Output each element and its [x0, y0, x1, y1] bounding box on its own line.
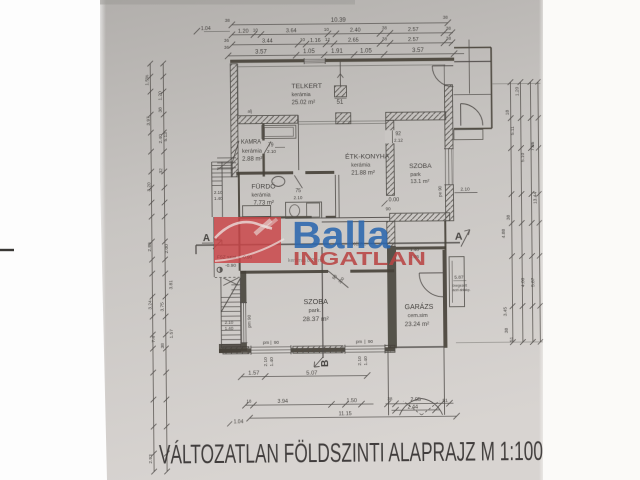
svg-text:36: 36	[224, 45, 230, 50]
svg-text:5.07: 5.07	[306, 371, 317, 377]
svg-text:2.12: 2.12	[394, 138, 403, 143]
svg-text:38: 38	[382, 25, 388, 30]
svg-text:38: 38	[387, 396, 392, 401]
svg-text:2.10: 2.10	[293, 195, 302, 200]
svg-text:2.89: 2.89	[147, 242, 153, 252]
svg-text:VÁLTOZATLAN FÖLDSZINTI ALAPRAJ: VÁLTOZATLAN FÖLDSZINTI ALAPRAJZ M 1:100	[159, 436, 543, 470]
svg-text:1.57: 1.57	[169, 329, 175, 339]
svg-text:7.4: 7.4	[151, 336, 157, 343]
svg-text:5.11: 5.11	[510, 126, 516, 135]
svg-text:18: 18	[246, 399, 251, 404]
svg-text:2.93: 2.93	[148, 454, 154, 464]
svg-text:KAMRA: KAMRA	[241, 139, 262, 146]
svg-text:3.75: 3.75	[159, 302, 165, 312]
svg-text:13.44: 13.44	[532, 192, 538, 204]
svg-text:SZOBA: SZOBA	[303, 297, 328, 306]
svg-text:38: 38	[504, 328, 510, 334]
svg-text:5.13: 5.13	[163, 132, 169, 142]
svg-text:1.5%: 1.5%	[144, 74, 150, 86]
svg-text:25.02 m²: 25.02 m²	[292, 100, 316, 106]
svg-text:11.15: 11.15	[339, 411, 352, 417]
svg-text:32: 32	[158, 168, 164, 174]
svg-text:3.64: 3.64	[286, 28, 297, 34]
svg-text:A: A	[455, 231, 463, 243]
svg-text:38: 38	[443, 15, 449, 20]
svg-text:1.04: 1.04	[234, 419, 244, 425]
svg-text:-0.90: -0.90	[225, 263, 236, 269]
svg-text:13.1 m²: 13.1 m²	[410, 179, 429, 185]
svg-text:1.57: 1.57	[248, 371, 259, 377]
svg-text:2.57: 2.57	[408, 37, 419, 43]
svg-text:38: 38	[382, 36, 388, 41]
svg-text:10: 10	[300, 37, 306, 42]
svg-text:2.88 m²: 2.88 m²	[242, 157, 262, 163]
svg-text:3.57: 3.57	[412, 48, 424, 54]
svg-text:kerámia: kerámia	[291, 92, 310, 98]
svg-text:79: 79	[268, 142, 274, 148]
svg-text:10.39: 10.39	[331, 18, 347, 24]
svg-text:kerámia: kerámia	[251, 192, 270, 198]
svg-text:ÉTK-KONYHA: ÉTK-KONYHA	[345, 151, 390, 160]
svg-text:38: 38	[506, 214, 512, 220]
svg-text:2.95: 2.95	[410, 397, 421, 403]
svg-text:1.40: 1.40	[269, 357, 275, 367]
svg-text:92: 92	[395, 131, 401, 137]
svg-text:75: 75	[295, 188, 301, 194]
svg-text:0.00: 0.00	[388, 197, 399, 203]
svg-text:pm: pm	[356, 339, 363, 344]
svg-text:1.50: 1.50	[346, 398, 357, 404]
svg-text:36: 36	[224, 38, 230, 43]
svg-text:38: 38	[160, 343, 166, 349]
svg-text:1.91: 1.91	[331, 49, 343, 55]
svg-text:2.10: 2.10	[214, 190, 223, 195]
svg-text:3.44: 3.44	[262, 38, 273, 44]
svg-text:2.10: 2.10	[267, 149, 276, 154]
svg-text:1.40: 1.40	[225, 326, 234, 331]
svg-text:2.10: 2.10	[225, 320, 234, 325]
svg-text:1.16: 1.16	[310, 38, 321, 44]
svg-text:2.44: 2.44	[407, 405, 418, 411]
svg-text:üvegezett: üvegezett	[452, 284, 467, 288]
svg-text:1.40: 1.40	[363, 356, 369, 366]
svg-text:cem.sim: cem.sim	[408, 313, 429, 319]
svg-text:5.10: 5.10	[520, 152, 526, 162]
svg-text:B: B	[320, 360, 331, 367]
svg-text:park: park	[410, 172, 421, 178]
svg-text:3.24: 3.24	[147, 300, 153, 310]
svg-text:90: 90	[386, 206, 392, 211]
svg-text:90: 90	[368, 339, 374, 344]
svg-text:21.88 m²: 21.88 m²	[351, 170, 375, 176]
svg-text:3.97: 3.97	[146, 116, 152, 126]
svg-text:INGATLAN: INGATLAN	[293, 249, 426, 269]
svg-text:12: 12	[325, 37, 331, 42]
svg-text:10: 10	[253, 28, 259, 33]
svg-text:2.10: 2.10	[263, 357, 269, 367]
svg-text:1.04: 1.04	[201, 26, 211, 32]
svg-text:4.00: 4.00	[520, 277, 526, 287]
svg-text:2.57: 2.57	[408, 27, 419, 33]
svg-text:90: 90	[274, 340, 280, 345]
svg-text:4.88: 4.88	[501, 229, 507, 239]
svg-text:51: 51	[337, 100, 344, 106]
svg-text:A: A	[203, 233, 210, 244]
svg-text:3.94: 3.94	[277, 399, 288, 405]
svg-text:kerámia: kerámia	[242, 149, 263, 155]
svg-text:23.24 m²: 23.24 m²	[405, 321, 429, 328]
svg-text:2.40: 2.40	[350, 28, 361, 34]
svg-text:1.05: 1.05	[360, 48, 372, 54]
svg-text:acél ablakp.: acél ablakp.	[452, 288, 470, 292]
svg-text:28.37 m²: 28.37 m²	[303, 316, 330, 323]
svg-text:51: 51	[509, 336, 515, 342]
svg-text:3.81: 3.81	[168, 280, 174, 290]
svg-text:1.20: 1.20	[157, 91, 163, 101]
svg-text:51: 51	[442, 398, 448, 404]
svg-text:FSZ szint = -0.90: FSZ szint = -0.90	[217, 255, 253, 260]
svg-text:park.: park.	[309, 308, 322, 314]
svg-text:2.10: 2.10	[460, 187, 470, 193]
svg-text:SZOBA: SZOBA	[409, 163, 432, 170]
svg-text:GARÁZS: GARÁZS	[405, 302, 434, 311]
svg-text:18: 18	[505, 109, 511, 115]
svg-text:alj: alj	[248, 109, 252, 114]
svg-text:38: 38	[446, 36, 452, 41]
svg-text:7.86: 7.86	[530, 141, 536, 151]
svg-text:3.20: 3.20	[146, 182, 152, 192]
svg-text:3.57: 3.57	[255, 49, 267, 55]
svg-text:1.40: 1.40	[214, 196, 223, 201]
svg-text:1.20: 1.20	[238, 29, 249, 35]
svg-text:pe 90: pe 90	[437, 185, 442, 197]
svg-text:1.05: 1.05	[303, 49, 315, 55]
svg-text:2.65: 2.65	[348, 38, 359, 44]
svg-text:TELKERT: TELKERT	[291, 83, 322, 90]
svg-text:1.20: 1.20	[514, 86, 520, 96]
svg-text:5.87: 5.87	[454, 275, 464, 281]
svg-text:2.10: 2.10	[357, 356, 363, 366]
svg-text:kerámia: kerámia	[351, 163, 370, 169]
svg-text:5.87: 5.87	[530, 277, 536, 287]
svg-text:pm 90: pm 90	[247, 314, 252, 327]
svg-text:38: 38	[446, 26, 452, 31]
svg-text:3.45: 3.45	[503, 307, 509, 317]
svg-text:38: 38	[158, 107, 164, 113]
svg-text:pm: pm	[263, 340, 270, 345]
svg-text:2.00: 2.00	[164, 244, 170, 254]
svg-text:38: 38	[225, 18, 231, 23]
svg-text:10: 10	[324, 27, 330, 32]
